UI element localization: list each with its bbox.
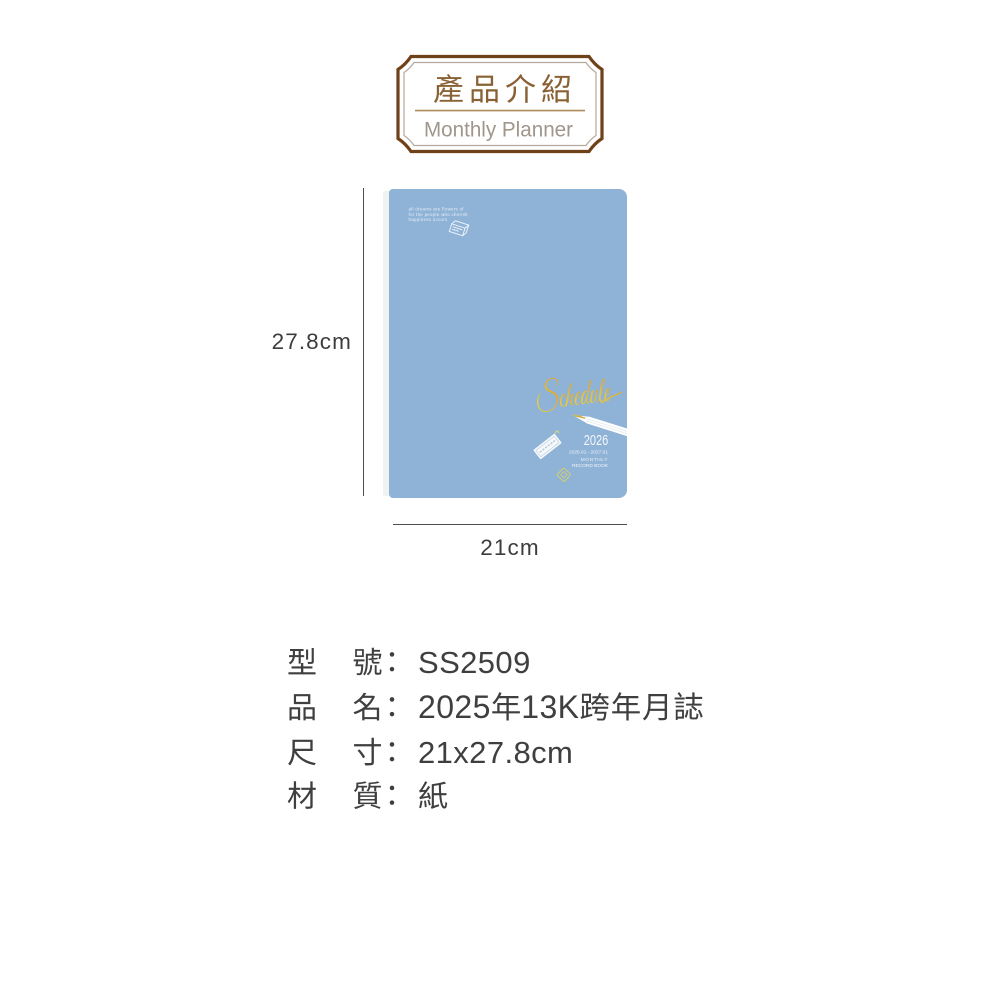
svg-text:13K: 13K: [521, 689, 579, 725]
svg-text:21x27.8cm: 21x27.8cm: [418, 735, 573, 770]
svg-text:happiness occurs: happiness occurs: [408, 217, 447, 222]
svg-text:2025: 2025: [418, 689, 491, 725]
svg-text:SS2509: SS2509: [418, 645, 531, 680]
svg-text:MONTHLY: MONTHLY: [580, 457, 607, 463]
svg-text:2026: 2026: [583, 433, 608, 449]
svg-text:all dreams are flowers of: all dreams are flowers of: [408, 207, 464, 212]
svg-text:for the people who cherish: for the people who cherish: [408, 212, 468, 217]
svg-text:Monthly Planner: Monthly Planner: [424, 118, 573, 141]
svg-text:RECORD BOOK: RECORD BOOK: [572, 463, 609, 469]
svg-text:2025.01 - 2027.01: 2025.01 - 2027.01: [569, 450, 608, 456]
